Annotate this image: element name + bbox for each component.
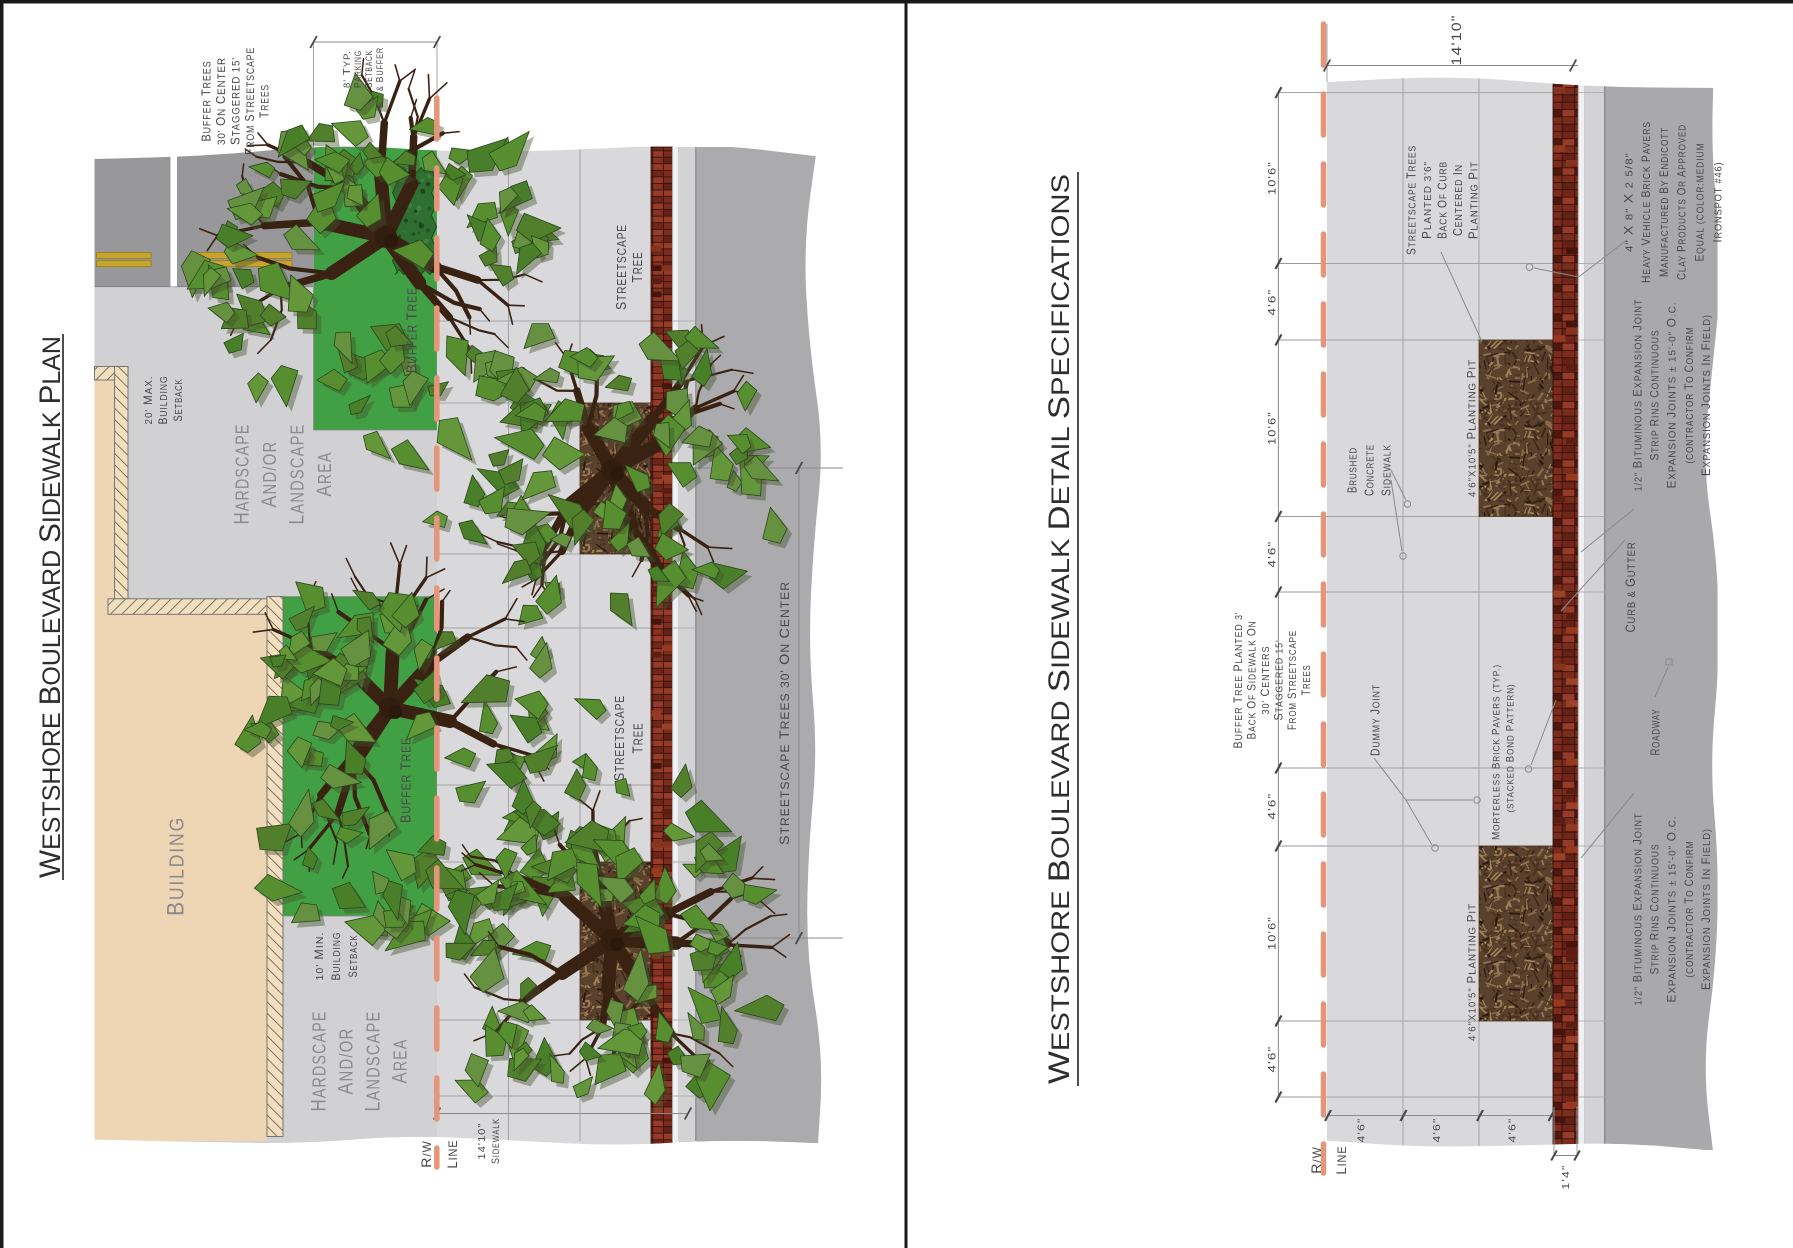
svg-text:IRONSPOT #46): IRONSPOT #46) [1710, 162, 1724, 243]
svg-text:WESTSHORE BOULEVARD SIDEWALK P: WESTSHORE BOULEVARD SIDEWALK PLAN [34, 336, 67, 878]
svg-text:LINE: LINE [1333, 1146, 1349, 1175]
svg-text:(STACKED BOND PATTERN): (STACKED BOND PATTERN) [1505, 684, 1517, 813]
svg-text:(CONTRACTOR TO CONFIRM: (CONTRACTOR TO CONFIRM [1682, 327, 1696, 464]
svg-text:BUILDING: BUILDING [329, 932, 343, 981]
svg-text:EXPANSION JOINTS ± 15'-0" O.C.: EXPANSION JOINTS ± 15'-0" O.C. [1665, 816, 1679, 1003]
svg-text:BACK OF CURB: BACK OF CURB [1436, 161, 1450, 239]
svg-text:CONCRETE: CONCRETE [1363, 444, 1377, 496]
svg-text:TREE: TREE [629, 723, 646, 754]
svg-text:4'6": 4'6" [1267, 793, 1279, 820]
svg-text:STAGGERED 15': STAGGERED 15' [228, 57, 243, 145]
svg-text:SETBACK: SETBACK [171, 379, 185, 422]
svg-text:EXPANSION JOINTS IN FIELD): EXPANSION JOINTS IN FIELD) [1699, 828, 1713, 990]
svg-text:SETBACK: SETBACK [346, 935, 360, 978]
svg-text:30' CENTERS: 30' CENTERS [1258, 646, 1272, 715]
svg-text:MORTERLESS BRICK PAVERS (TYP.): MORTERLESS BRICK PAVERS (TYP.) [1491, 664, 1503, 840]
svg-text:HARDSCAPE: HARDSCAPE [307, 1011, 331, 1112]
svg-text:4'6": 4'6" [1267, 541, 1279, 568]
svg-text:LINE: LINE [444, 1140, 460, 1169]
svg-text:MANUFACTURED BY ENDICOTT: MANUFACTURED BY ENDICOTT [1657, 127, 1671, 277]
svg-text:AND/OR: AND/OR [257, 441, 281, 508]
svg-text:AND/OR: AND/OR [334, 1028, 358, 1095]
svg-text:FROM STREETSCAPE: FROM STREETSCAPE [242, 47, 257, 155]
svg-text:(CONTRACTOR TO CONFIRM: (CONTRACTOR TO CONFIRM [1682, 841, 1696, 978]
svg-text:SIDEWALK: SIDEWALK [490, 1118, 502, 1164]
svg-text:4" X 8" X 2 5/8": 4" X 8" X 2 5/8" [1621, 152, 1635, 252]
svg-text:STREETSCAPE TREES 30' ON CENTE: STREETSCAPE TREES 30' ON CENTER [776, 581, 792, 845]
svg-text:1'4": 1'4" [1561, 1165, 1572, 1190]
svg-text:TREES: TREES [256, 84, 271, 118]
svg-text:STREETSCAPE: STREETSCAPE [613, 224, 630, 310]
svg-text:BRUSHED: BRUSHED [1346, 447, 1360, 493]
svg-text:30' ON CENTER: 30' ON CENTER [213, 57, 228, 145]
svg-text:4'6": 4'6" [1356, 1118, 1367, 1143]
svg-text:BUILDING: BUILDING [156, 376, 170, 425]
svg-text:4'6"X10'5" PLANTING PIT: 4'6"X10'5" PLANTING PIT [1467, 359, 1479, 497]
svg-text:R/W: R/W [418, 1140, 434, 1168]
svg-text:CURB & GUTTER: CURB & GUTTER [1623, 542, 1638, 633]
svg-text:BUILDING: BUILDING [163, 816, 190, 916]
svg-text:STRIP RINS CONTINUOUS: STRIP RINS CONTINUOUS [1648, 330, 1662, 461]
svg-text:DUMMY JOINT: DUMMY JOINT [1369, 684, 1383, 756]
svg-text:& BUFFER: & BUFFER [374, 47, 386, 91]
svg-text:FROM STREETSCAPE: FROM STREETSCAPE [1285, 630, 1299, 730]
svg-text:10'6": 10'6" [1267, 411, 1279, 445]
svg-text:20' MAX.: 20' MAX. [141, 376, 155, 425]
svg-text:AREA: AREA [312, 452, 336, 497]
svg-text:4'6"X10'5" PLANTING PIT: 4'6"X10'5" PLANTING PIT [1467, 903, 1479, 1041]
svg-text:STREETSCAPE: STREETSCAPE [611, 695, 628, 781]
svg-text:EXPANSION JOINTS IN FIELD): EXPANSION JOINTS IN FIELD) [1699, 314, 1713, 476]
svg-text:BUFFER TREES: BUFFER TREES [199, 61, 214, 142]
svg-text:14'10": 14'10" [1448, 15, 1464, 66]
svg-text:STREETSCAPE TREES: STREETSCAPE TREES [1405, 145, 1419, 255]
svg-text:BACK OF SIDEWALK ON: BACK OF SIDEWALK ON [1244, 621, 1258, 740]
svg-text:14'10": 14'10" [477, 1123, 488, 1160]
svg-text:STAGGERED 15': STAGGERED 15' [1272, 640, 1286, 721]
svg-text:4'6": 4'6" [1432, 1118, 1443, 1143]
svg-text:PLANTED 3'6": PLANTED 3'6" [1420, 161, 1434, 239]
svg-text:EXPANSION JOINTS ± 15'-0" O.C.: EXPANSION JOINTS ± 15'-0" O.C. [1665, 302, 1679, 489]
svg-text:1/2" BITUMINOUS EXPANSION JOIN: 1/2" BITUMINOUS EXPANSION JOINT [1630, 813, 1644, 1006]
svg-text:CLAY PRODUCTS OR APPROVED: CLAY PRODUCTS OR APPROVED [1675, 124, 1689, 280]
svg-text:1/2" BITUMINOUS EXPANSION JOIN: 1/2" BITUMINOUS EXPANSION JOINT [1630, 299, 1644, 492]
svg-text:AREA: AREA [388, 1039, 412, 1084]
svg-text:10'6": 10'6" [1267, 161, 1279, 195]
svg-text:TREES: TREES [1299, 665, 1313, 696]
svg-text:EQUAL (COLOR:MEDIUM: EQUAL (COLOR:MEDIUM [1693, 143, 1707, 262]
svg-text:4'6": 4'6" [1267, 289, 1279, 316]
svg-text:R/W: R/W [1308, 1146, 1324, 1174]
svg-text:ROADWAY: ROADWAY [1648, 709, 1663, 756]
svg-text:LANDSCAPE: LANDSCAPE [285, 424, 309, 525]
svg-text:SIDEWALK: SIDEWALK [1380, 444, 1394, 496]
svg-text:BUFFER TREE PLANTED 3': BUFFER TREE PLANTED 3' [1231, 612, 1245, 749]
svg-text:HARDSCAPE: HARDSCAPE [230, 424, 254, 525]
svg-text:PLANTING PIT: PLANTING PIT [1467, 161, 1481, 239]
svg-text:4'6": 4'6" [1507, 1118, 1518, 1143]
svg-text:4'6": 4'6" [1267, 1046, 1279, 1073]
svg-text:LANDSCAPE: LANDSCAPE [361, 1011, 385, 1112]
svg-text:WESTSHORE BOULEVARD SIDEWALK D: WESTSHORE BOULEVARD SIDEWALK DETAIL SPEC… [1043, 174, 1076, 1084]
svg-text:BUFFER TREE: BUFFER TREE [397, 737, 414, 823]
svg-text:CENTERED IN: CENTERED IN [1451, 164, 1465, 236]
svg-text:HEAVY VEHICLE BRICK PAVERS: HEAVY VEHICLE BRICK PAVERS [1639, 121, 1653, 283]
svg-text:BUFFER TREE: BUFFER TREE [403, 287, 420, 373]
svg-text:TREE: TREE [629, 252, 646, 283]
svg-text:STRIP RINS CONTINUOUS: STRIP RINS CONTINUOUS [1648, 844, 1662, 975]
svg-text:10'6": 10'6" [1267, 916, 1279, 950]
svg-text:10' MIN.: 10' MIN. [312, 932, 326, 981]
